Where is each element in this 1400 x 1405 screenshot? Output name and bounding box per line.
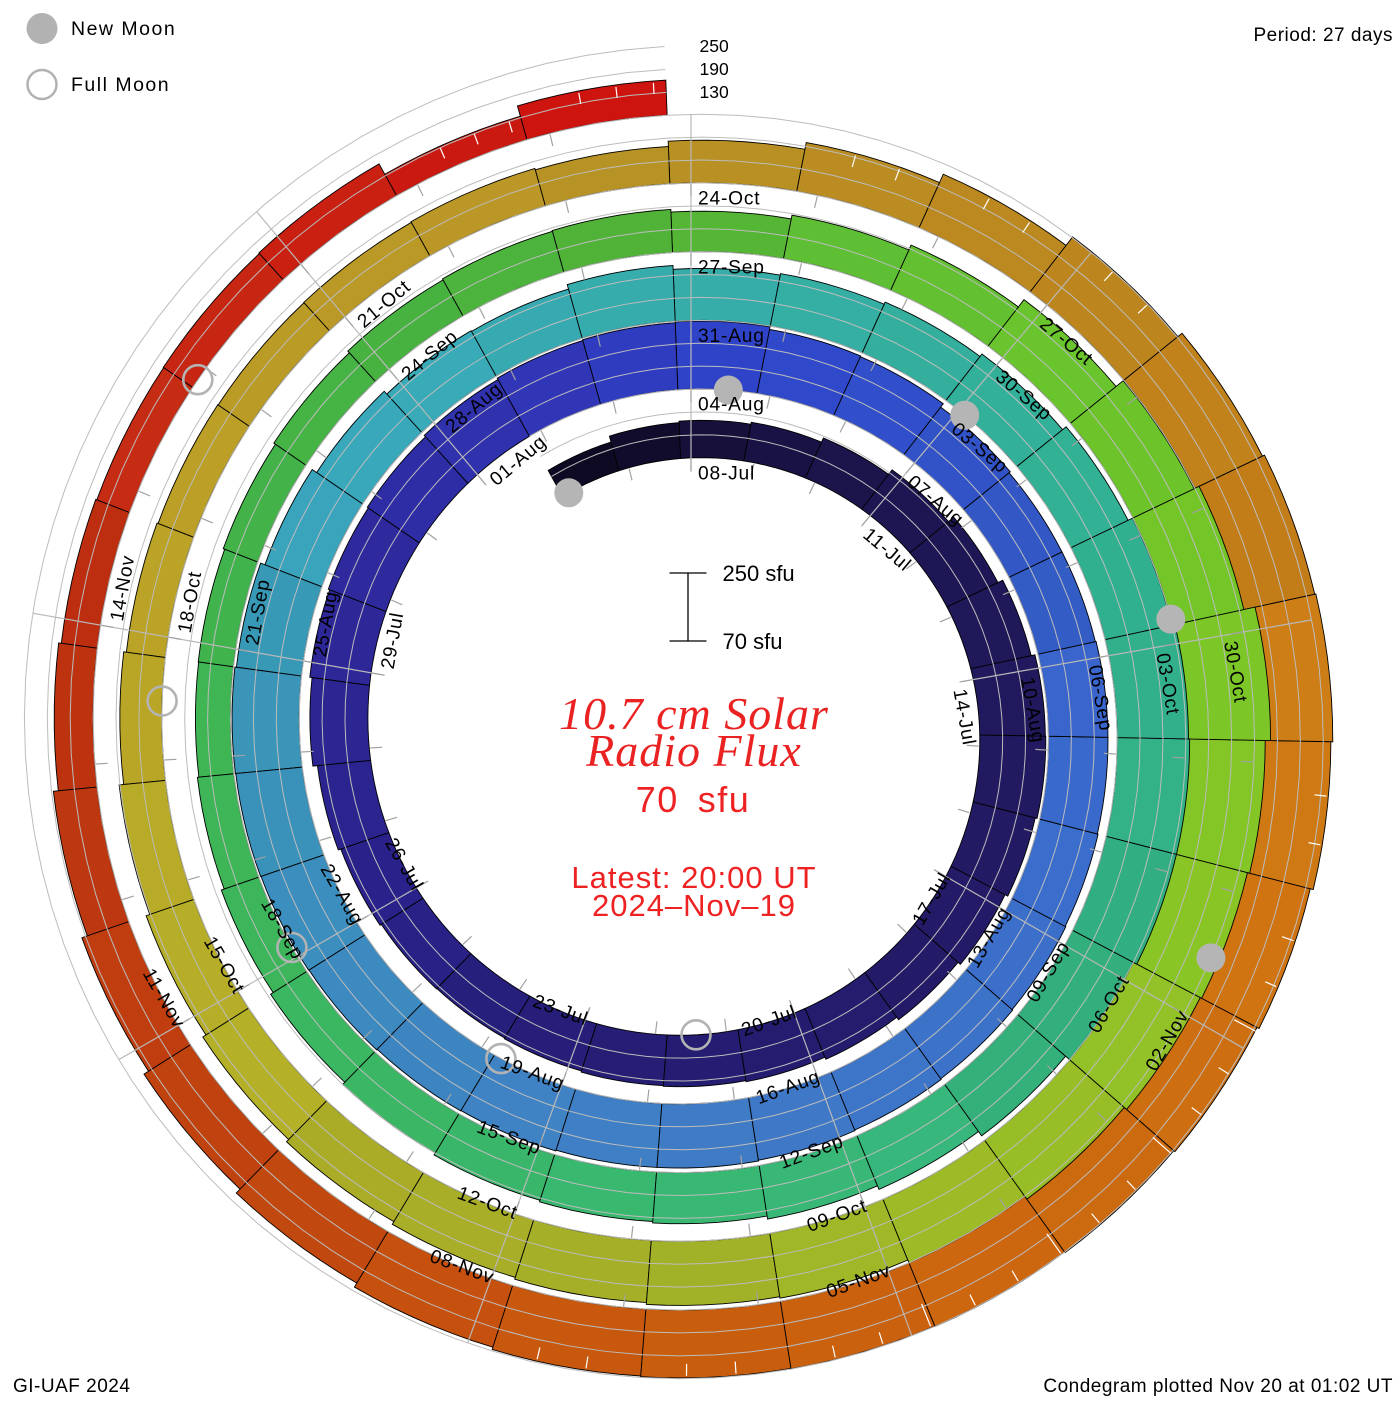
svg-text:190: 190 bbox=[700, 59, 729, 79]
svg-text:250 sfu: 250 sfu bbox=[723, 561, 795, 586]
svg-text:Condegram plotted Nov 20 at 01: Condegram plotted Nov 20 at 01:02 UT bbox=[1043, 1376, 1393, 1397]
svg-text:Full Moon: Full Moon bbox=[71, 74, 170, 96]
svg-text:250: 250 bbox=[700, 36, 729, 56]
svg-text:2024–Nov–19: 2024–Nov–19 bbox=[592, 888, 796, 923]
svg-text:GI-UAF 2024: GI-UAF 2024 bbox=[13, 1376, 130, 1397]
svg-text:70 sfu: 70 sfu bbox=[723, 629, 783, 654]
svg-text:27-Sep: 27-Sep bbox=[698, 257, 765, 278]
svg-text:04-Aug: 04-Aug bbox=[698, 395, 765, 416]
svg-text:08-Jul: 08-Jul bbox=[698, 463, 755, 484]
svg-text:31-Aug: 31-Aug bbox=[698, 326, 765, 347]
svg-text:New Moon: New Moon bbox=[71, 18, 176, 40]
svg-text:24-Oct: 24-Oct bbox=[698, 189, 760, 210]
svg-text:Period: 27 days: Period: 27 days bbox=[1253, 25, 1393, 46]
svg-text:130: 130 bbox=[700, 82, 729, 102]
svg-text:Radio Flux: Radio Flux bbox=[585, 725, 802, 776]
svg-text:70 sfu: 70 sfu bbox=[636, 779, 751, 820]
